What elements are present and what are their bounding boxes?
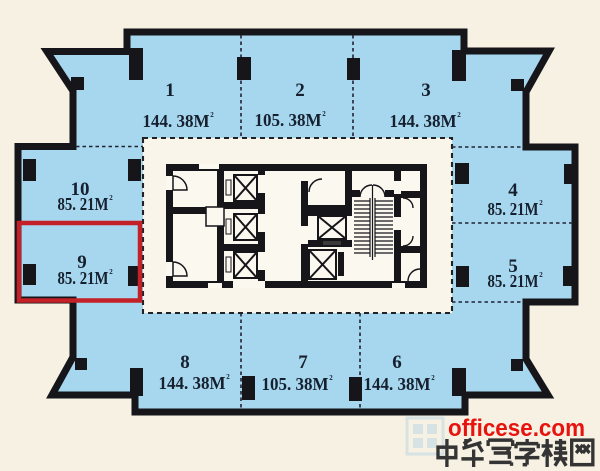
svg-text:2: 2	[109, 268, 113, 276]
svg-text:85. 21M: 85. 21M	[488, 199, 539, 219]
svg-text:85. 21M: 85. 21M	[58, 268, 109, 288]
svg-text:85. 21M: 85. 21M	[488, 271, 539, 291]
svg-text:2: 2	[210, 111, 214, 119]
svg-text:1: 1	[165, 80, 175, 101]
svg-text:2: 2	[295, 80, 305, 101]
svg-text:officese.com: officese.com	[448, 415, 585, 442]
svg-text:144. 38M: 144. 38M	[159, 373, 226, 393]
svg-text:85. 21M: 85. 21M	[58, 194, 109, 214]
svg-text:3: 3	[421, 80, 431, 101]
svg-text:144. 38M: 144. 38M	[364, 374, 431, 394]
svg-text:2: 2	[539, 271, 543, 279]
svg-text:6: 6	[392, 352, 402, 373]
svg-text:144. 38M: 144. 38M	[390, 111, 457, 131]
svg-text:2: 2	[431, 374, 435, 382]
svg-text:4: 4	[508, 180, 518, 201]
svg-text:2: 2	[539, 199, 543, 207]
svg-text:2: 2	[226, 373, 230, 381]
svg-text:144. 38M: 144. 38M	[143, 111, 210, 131]
svg-text:8: 8	[180, 352, 190, 373]
svg-text:2: 2	[457, 111, 461, 119]
svg-text:105. 38M: 105. 38M	[255, 110, 322, 130]
svg-text:2: 2	[322, 110, 326, 118]
svg-text:105. 38M: 105. 38M	[262, 374, 329, 394]
svg-text:2: 2	[329, 374, 333, 382]
svg-text:7: 7	[298, 352, 308, 373]
svg-text:2: 2	[109, 194, 113, 202]
